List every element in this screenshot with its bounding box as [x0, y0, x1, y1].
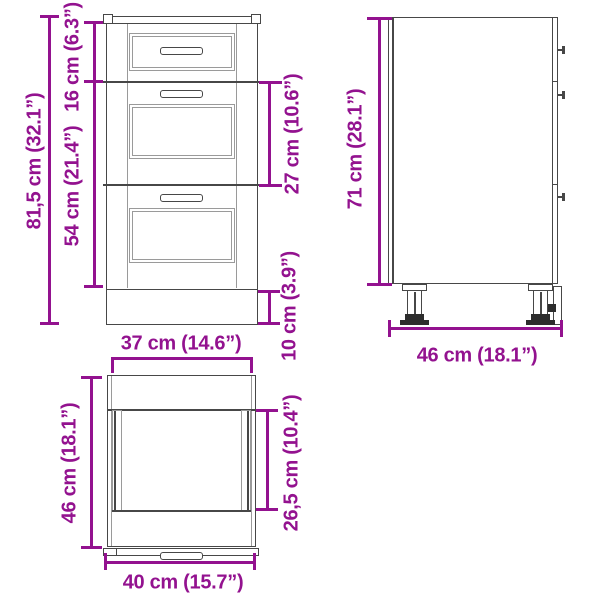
right-leg-screw: [540, 292, 542, 316]
dim-tick: [250, 357, 253, 373]
top-right-inner-line: [251, 376, 252, 546]
dim-tick: [84, 21, 103, 24]
dim-tick: [367, 283, 392, 286]
side-carcass: [388, 17, 558, 284]
dim-line-total-height: [48, 16, 51, 325]
drawer3-panel-inner: [132, 211, 232, 260]
dim-line-body-width: [111, 357, 253, 360]
drawer2-handle: [160, 90, 203, 98]
side-front-inner-line: [552, 18, 553, 283]
dim-tick: [259, 184, 282, 187]
dim-tick: [84, 80, 103, 83]
dim-line-top-depth: [90, 377, 93, 549]
front-right-stile-line: [236, 24, 237, 288]
left-leg-base: [400, 320, 429, 325]
top-drawer-front-line: [112, 510, 251, 512]
dim-tick: [367, 17, 392, 20]
front-left-stile-line: [127, 24, 128, 288]
dim-label-top-depth: 46 cm (18.1”): [59, 403, 82, 524]
dim-tick: [388, 320, 391, 337]
dim-tick: [81, 376, 102, 379]
dim-label-lower-drawers: 54 cm (21.4”): [62, 126, 85, 247]
side-back-inner-line: [392, 18, 394, 283]
dim-line-side-depth: [388, 327, 563, 330]
drawer2-panel-inner: [132, 107, 232, 156]
dim-line-plinth: [268, 291, 271, 325]
dim-tick: [84, 285, 103, 288]
top-left-rail-line: [114, 411, 116, 511]
right-leg-base: [526, 320, 555, 325]
top-carcass: [107, 375, 256, 547]
dim-tick: [258, 290, 280, 293]
dim-label-inner-depth: 26,5 cm (10.4”): [281, 395, 304, 532]
dim-tick: [104, 553, 107, 570]
dim-line-inner-depth: [266, 410, 269, 511]
front-divider-line-2: [103, 184, 270, 186]
dim-tick: [111, 357, 114, 373]
top-front-panel-mark: [116, 549, 117, 556]
cabinet-dimension-diagram: 81,5 cm (32.1”) 16 cm (6.3”) 54 cm (21.4…: [0, 0, 600, 600]
dim-label-overall-width: 40 cm (15.7”): [123, 572, 244, 595]
side-front-divider-1: [552, 81, 558, 82]
dim-tick: [258, 322, 280, 325]
side-front-divider-2: [552, 184, 558, 185]
left-leg-screw: [414, 292, 416, 316]
dim-label-plinth: 10 cm (3.9”): [279, 251, 302, 361]
dim-label-body-width: 37 cm (14.6”): [121, 333, 242, 356]
drawer1-handle: [160, 47, 203, 55]
top-right-rail: [241, 410, 251, 512]
side-handle1-bar: [562, 46, 565, 54]
drawer3-handle: [160, 194, 203, 202]
dim-label-side-depth: 46 cm (18.1”): [417, 345, 538, 368]
dim-label-top-drawer: 16 cm (6.3”): [62, 2, 85, 112]
dim-label-total-height: 81,5 cm (32.1”): [24, 93, 47, 230]
dim-tick: [40, 15, 59, 18]
dim-label-side-height: 71 cm (28.1”): [345, 89, 368, 210]
dim-line-middle-drawers: [268, 82, 271, 186]
top-back-panel-line: [108, 409, 255, 411]
top-right-rail-line: [247, 411, 249, 511]
dim-label-middle-drawers: 27 cm (10.6”): [282, 74, 305, 195]
dim-line-drawer-heights: [93, 22, 96, 288]
dim-line-overall-width: [104, 561, 256, 564]
dim-tick: [81, 546, 102, 549]
dim-tick: [560, 320, 563, 337]
front-divider-line-1: [103, 81, 270, 83]
side-handle2-bar: [562, 91, 565, 99]
front-plinth: [106, 289, 258, 325]
dim-line-side-height: [378, 18, 381, 286]
dim-tick: [256, 409, 278, 412]
plinth-clip: [547, 304, 556, 312]
dim-tick: [259, 81, 282, 84]
top-view-handle: [160, 552, 203, 560]
dim-tick: [40, 322, 59, 325]
dim-tick: [256, 508, 278, 511]
dim-tick: [253, 553, 256, 570]
side-handle3-bar: [562, 193, 565, 201]
